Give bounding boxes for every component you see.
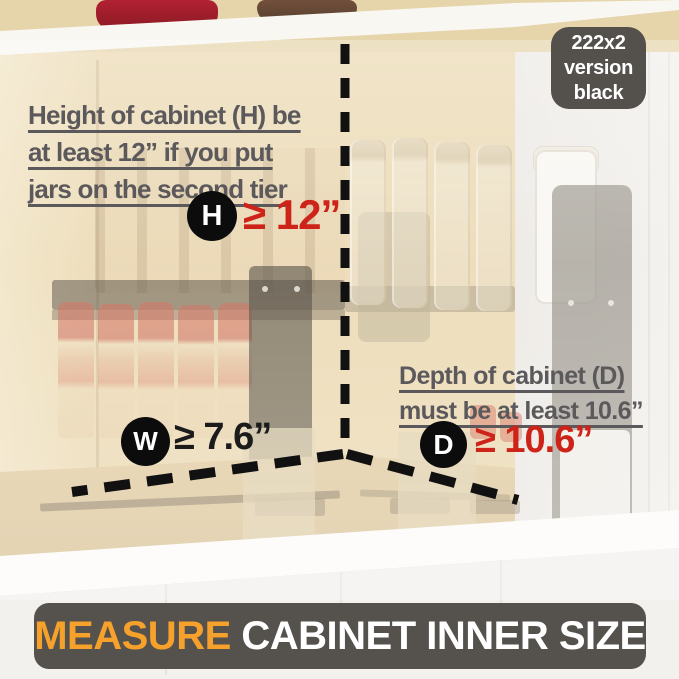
banner-highlight: MEASURE bbox=[34, 614, 231, 659]
version-badge: 222x2 version black bbox=[551, 27, 646, 109]
depth-marker-circle: D bbox=[420, 421, 467, 468]
depth-value: ≥ 10.6” bbox=[475, 419, 592, 462]
depth-note-line: Depth of cabinet (D) bbox=[399, 359, 643, 394]
badge-line: black bbox=[574, 81, 624, 106]
height-note-line: at least 12” if you put bbox=[28, 134, 301, 171]
width-marker-circle: W bbox=[121, 417, 170, 466]
width-value: ≥ 7.6” bbox=[174, 416, 271, 459]
depth-marker-letter: D bbox=[433, 429, 453, 461]
width-dashed-line bbox=[72, 454, 343, 492]
height-note-line: Height of cabinet (H) be bbox=[28, 97, 301, 134]
badge-line: 222x2 bbox=[571, 31, 625, 56]
badge-line: version bbox=[564, 56, 633, 81]
banner-rest: CABINET INNER SIZE bbox=[231, 614, 646, 659]
height-marker-circle: H bbox=[187, 191, 237, 241]
height-value: ≥ 12” bbox=[243, 191, 340, 239]
measure-banner: MEASURE CABINET INNER SIZE bbox=[34, 603, 646, 669]
height-marker-letter: H bbox=[202, 200, 223, 233]
width-marker-letter: W bbox=[133, 426, 158, 457]
product-image: 222x2 version black Height of cabinet (H… bbox=[0, 0, 679, 679]
